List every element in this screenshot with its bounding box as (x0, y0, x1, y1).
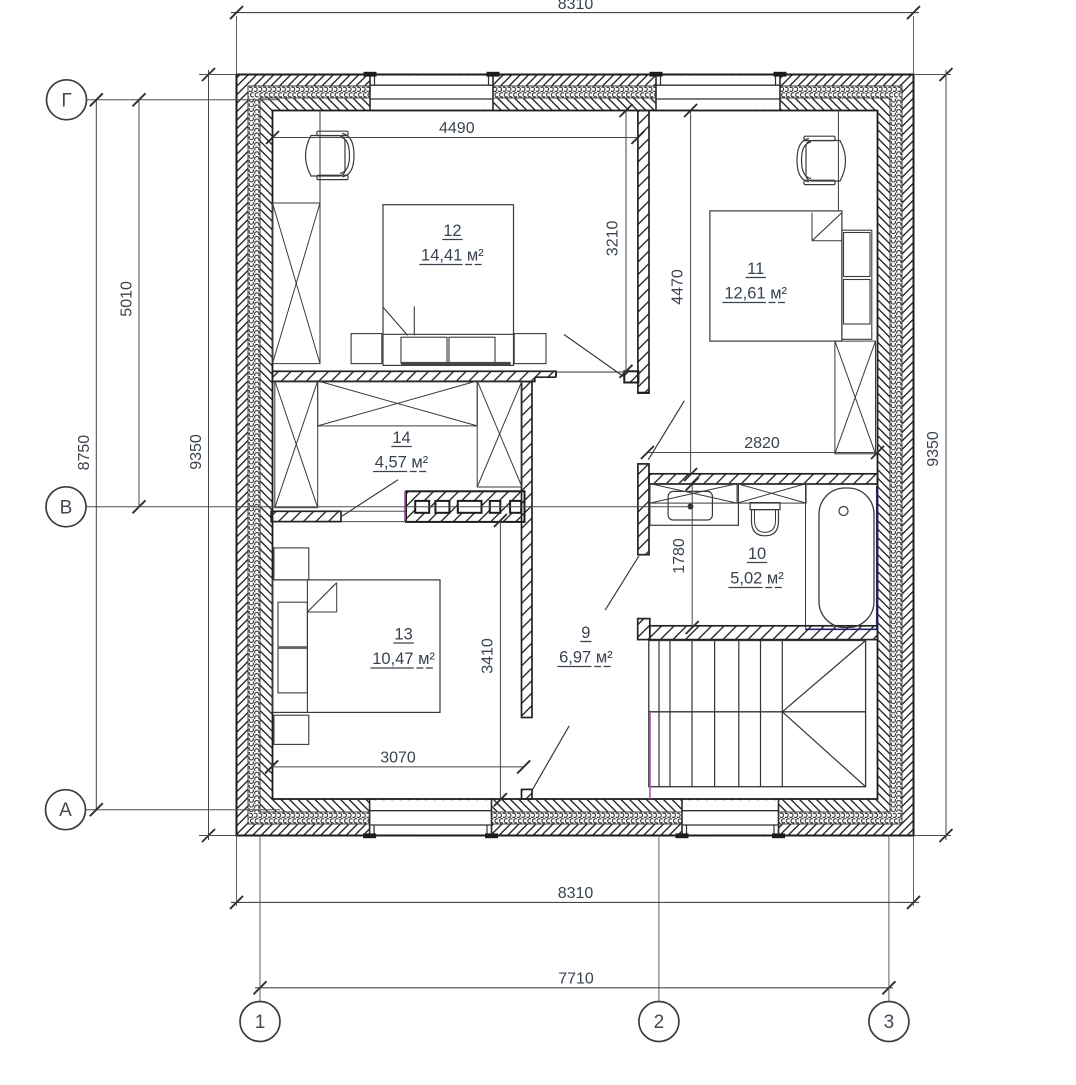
svg-text:5,02 м²: 5,02 м² (730, 570, 784, 588)
svg-text:3070: 3070 (380, 749, 416, 766)
svg-text:А: А (59, 800, 72, 821)
svg-text:3410: 3410 (480, 638, 497, 674)
svg-text:8310: 8310 (558, 0, 594, 13)
svg-text:8310: 8310 (558, 885, 594, 902)
svg-text:1: 1 (255, 1012, 266, 1033)
svg-text:10: 10 (748, 545, 766, 563)
svg-text:12: 12 (443, 222, 461, 240)
svg-text:14: 14 (392, 429, 410, 447)
svg-text:9350: 9350 (188, 434, 205, 470)
svg-text:10,47 м²: 10,47 м² (372, 650, 435, 668)
svg-text:4,57 м²: 4,57 м² (375, 454, 429, 472)
svg-text:В: В (60, 497, 73, 518)
svg-text:2820: 2820 (744, 435, 780, 452)
svg-text:3: 3 (884, 1012, 895, 1033)
svg-text:Г: Г (61, 90, 71, 111)
svg-text:11: 11 (747, 260, 764, 278)
svg-text:13: 13 (394, 626, 412, 644)
svg-text:9: 9 (581, 624, 590, 642)
svg-text:7710: 7710 (558, 970, 594, 987)
svg-text:4490: 4490 (439, 120, 475, 137)
svg-text:12,61 м²: 12,61 м² (724, 285, 787, 303)
svg-text:9350: 9350 (925, 431, 942, 467)
svg-text:4470: 4470 (670, 269, 687, 305)
svg-text:6,97 м²: 6,97 м² (559, 649, 613, 667)
svg-text:8750: 8750 (76, 435, 93, 471)
svg-text:1780: 1780 (671, 538, 688, 574)
svg-text:3210: 3210 (605, 221, 622, 257)
svg-text:14,41 м²: 14,41 м² (421, 247, 484, 265)
svg-text:5010: 5010 (119, 281, 136, 317)
svg-text:2: 2 (654, 1012, 665, 1033)
